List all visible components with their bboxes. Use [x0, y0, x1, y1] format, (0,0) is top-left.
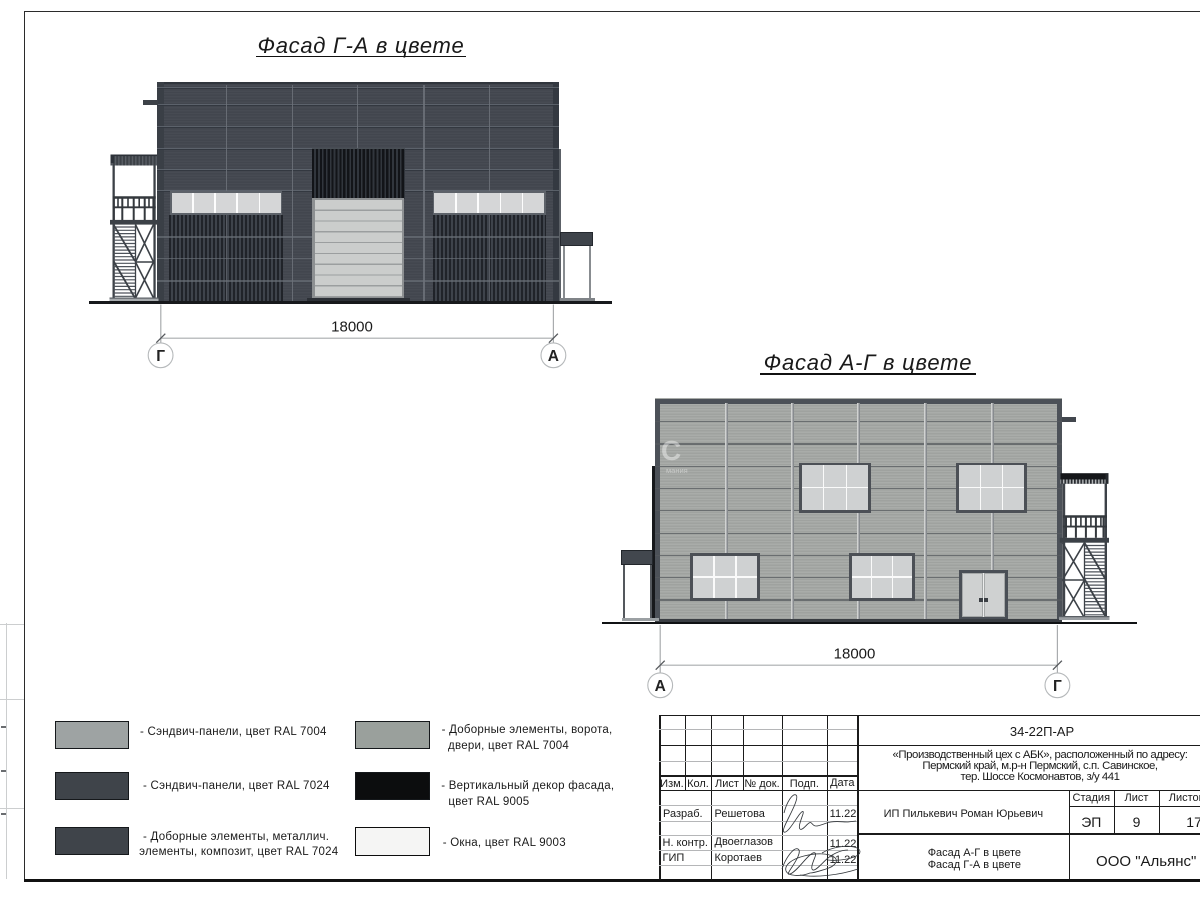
- svg-text:Г: Г: [1053, 678, 1062, 695]
- svg-text:18000: 18000: [834, 646, 876, 663]
- svg-text:18000: 18000: [331, 319, 373, 336]
- svg-text:А: А: [655, 678, 666, 695]
- svg-text:А: А: [548, 348, 559, 365]
- svg-text:Г: Г: [156, 348, 165, 365]
